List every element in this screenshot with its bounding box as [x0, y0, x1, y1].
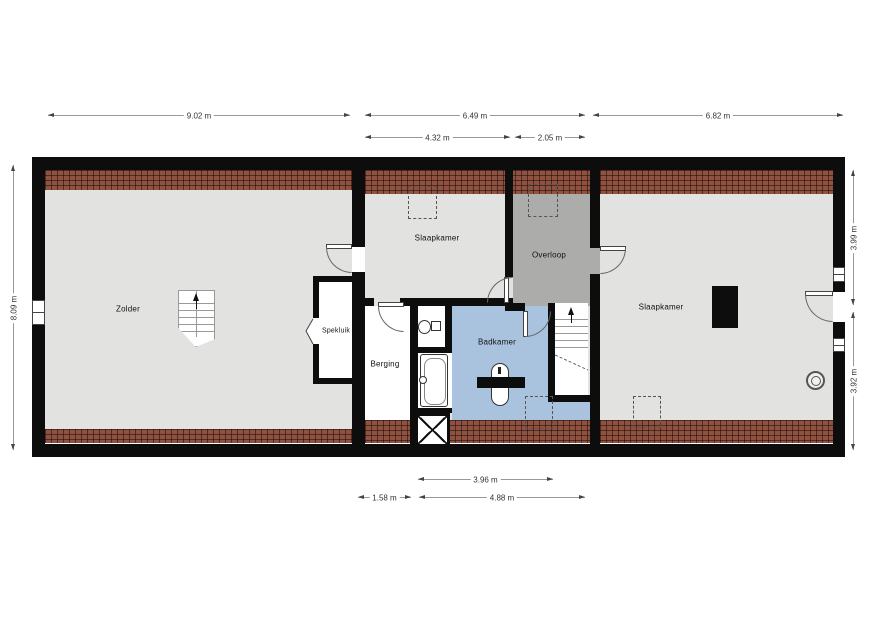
- dimension-top-middle-total: 6.49 m: [365, 110, 585, 121]
- ventilation-unit-icon: [806, 371, 825, 390]
- dimension-right-top: 3.99 m: [848, 170, 859, 305]
- window-right-lower: [833, 338, 845, 352]
- dimension-bottom-badkamer: 4.88 m: [419, 492, 585, 503]
- outer-wall-right-2: [833, 282, 845, 292]
- dimension-bottom-berging: 1.58 m: [358, 492, 411, 503]
- badkamer-floor-strip: [550, 400, 590, 420]
- bathtub: [420, 354, 448, 407]
- ventilation-inner-circle: [811, 376, 821, 386]
- window-left: [32, 300, 45, 325]
- dimension-top-zolder: 9.02 m: [48, 110, 350, 121]
- tap-icon: [498, 367, 501, 374]
- room-label-berging: Berging: [371, 360, 400, 369]
- stair-cut-line: [555, 303, 588, 398]
- skylight-marker: [525, 396, 553, 429]
- floor-plan: Zolder Slaapkamer Overloop Spekluik Berg…: [0, 0, 872, 617]
- wall-badkamer-top: [505, 303, 525, 311]
- skylight-marker: [528, 184, 558, 217]
- cistern-icon: [431, 321, 441, 331]
- wall-stairwell-bottom: [548, 395, 590, 402]
- faucet-icon: [419, 376, 427, 384]
- room-label-overloop: Overloop: [532, 251, 566, 260]
- dimension-top-middle-left: 4.32 m: [365, 132, 510, 143]
- wall-slaapkamer-overloop: [505, 170, 513, 277]
- dimension-bottom-inner: 3.96 m: [418, 474, 553, 485]
- dimension-right-bottom: 3.92 m: [848, 312, 859, 450]
- brick-band-middle-bottom: [365, 420, 590, 443]
- window-right-upper: [833, 267, 845, 282]
- outer-wall-right-1: [833, 157, 845, 267]
- door-gap-right-bedroom: [590, 248, 600, 274]
- dimension-left-height: 8.09 m: [8, 165, 19, 450]
- outer-wall-left-upper: [32, 157, 45, 300]
- outer-wall-top: [32, 157, 845, 170]
- room-label-badkamer: Badkamer: [478, 338, 516, 347]
- door-gap-exterior: [833, 292, 845, 322]
- bathtub-inner: [424, 358, 446, 405]
- brick-band-right-top: [600, 170, 833, 194]
- divider-zolder-upper: [352, 157, 365, 247]
- brick-band-zolder-top: [45, 170, 352, 190]
- dimension-top-right: 6.82 m: [593, 110, 843, 121]
- door-gap-zolder: [352, 247, 365, 272]
- room-label-slaapkamer-mid: Slaapkamer: [415, 234, 460, 243]
- room-label-zolder: Zolder: [116, 305, 140, 314]
- brick-band-zolder-bottom: [45, 429, 352, 443]
- divider-right-lower: [590, 274, 600, 457]
- dimension-top-middle-right: 2.05 m: [515, 132, 585, 143]
- washbasin-counter: [477, 377, 525, 388]
- hatch-door-icon: [305, 318, 314, 345]
- room-label-spekluik: Spekluik: [322, 328, 350, 335]
- outer-wall-right-4: [833, 352, 845, 457]
- wall-alcove-bottom: [410, 347, 452, 353]
- skylight-marker: [633, 396, 661, 428]
- chimney: [712, 286, 738, 328]
- wall-alcove-right: [445, 306, 452, 352]
- outer-wall-right-3: [833, 322, 845, 338]
- up-arrow-icon: [193, 293, 200, 309]
- outer-wall-left-lower: [32, 325, 45, 457]
- main-stairs: [555, 303, 588, 398]
- room-label-slaapkamer-right: Slaapkamer: [639, 303, 684, 312]
- toilet-icon: [418, 320, 431, 334]
- shaft-x-icon: [415, 413, 450, 447]
- divider-right-upper: [590, 157, 600, 248]
- skylight-marker: [408, 186, 437, 219]
